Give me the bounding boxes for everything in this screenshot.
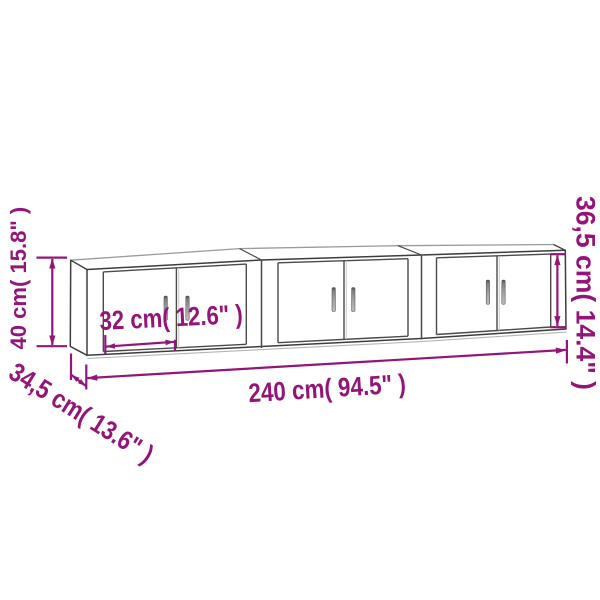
svg-text:40 cm( 15.8" ): 40 cm( 15.8" )	[6, 207, 31, 350]
svg-text:36,5 cm( 14.4" ): 36,5 cm( 14.4" )	[570, 196, 600, 390]
